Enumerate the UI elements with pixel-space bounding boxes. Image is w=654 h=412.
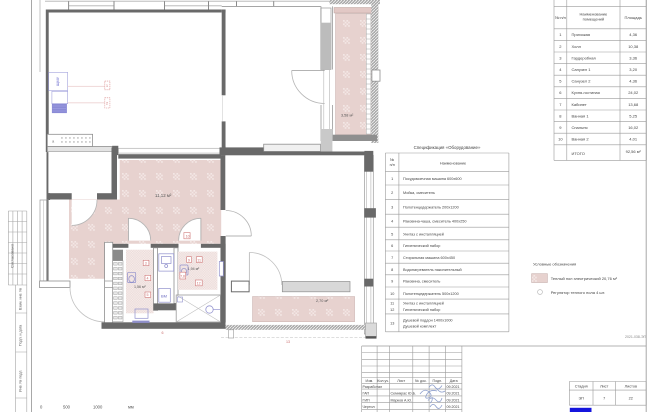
svg-text:11: 11 (197, 258, 201, 262)
svg-text:16,02: 16,02 (628, 125, 639, 130)
svg-text:Подп.: Подп. (433, 379, 443, 383)
svg-text:5,25: 5,25 (629, 113, 638, 118)
svg-text:Площадь: Площадь (624, 15, 641, 20)
svg-text:Санузел 1: Санузел 1 (572, 67, 592, 72)
svg-text:7,8: 7,8 (180, 275, 185, 279)
svg-text:2,70 м²: 2,70 м² (316, 299, 329, 303)
svg-text:п/п: п/п (390, 163, 395, 167)
svg-text:Теплый пол электрический 20,76: Теплый пол электрический 20,76 м² (551, 276, 618, 281)
svg-text:Марков А.Ю.: Марков А.Ю. (391, 398, 413, 402)
svg-text:Взам. инв. №: Взам. инв. № (19, 288, 23, 310)
svg-text:Изм.: Изм. (366, 379, 374, 383)
svg-text:Условные обозначения: Условные обозначения (533, 262, 576, 267)
svg-text:3: 3 (145, 262, 147, 266)
svg-text:4,36: 4,36 (629, 32, 638, 37)
svg-text:Унитаз с инсталляцией: Унитаз с инсталляцией (403, 232, 444, 236)
svg-text:Гигиенический набор: Гигиенический набор (403, 244, 440, 248)
svg-text:№ п/п: № п/п (555, 15, 566, 20)
svg-text:5: 5 (147, 293, 149, 297)
svg-text:Кабинет: Кабинет (572, 102, 587, 107)
svg-text:Спецификация «Оборудование»: Спецификация «Оборудование» (414, 145, 481, 150)
svg-text:13,68: 13,68 (628, 102, 639, 107)
svg-text:22: 22 (629, 397, 633, 401)
svg-text:Стадия: Стадия (575, 384, 588, 388)
svg-text:5: 5 (391, 232, 393, 236)
svg-text:Прихожая: Прихожая (572, 32, 591, 37)
svg-text:Семикрас Ю.Б.: Семикрас Ю.Б. (391, 392, 416, 396)
svg-text:10: 10 (558, 137, 563, 142)
svg-text:Холл: Холл (572, 44, 582, 49)
svg-text:№: № (390, 158, 394, 162)
svg-text:3,20: 3,20 (629, 67, 638, 72)
svg-text:1: 1 (106, 84, 108, 88)
svg-text:1000: 1000 (93, 405, 103, 410)
svg-text:Душевой поддон 1400х1000: Душевой поддон 1400х1000 (403, 319, 453, 323)
svg-text:Лист: Лист (600, 384, 609, 388)
svg-text:ВМ: ВМ (161, 294, 167, 299)
svg-text:Подп. и дата: Подп. и дата (19, 325, 23, 346)
svg-text:Ванная 2: Ванная 2 (572, 137, 590, 142)
svg-text:9: 9 (391, 280, 393, 284)
svg-text:Стиральная машина 600х450: Стиральная машина 600х450 (403, 256, 455, 260)
svg-text:3,58 м²: 3,58 м² (341, 114, 354, 118)
svg-text:помещений: помещений (583, 17, 605, 22)
svg-text:11: 11 (390, 302, 394, 306)
svg-text:4: 4 (391, 220, 393, 224)
svg-text:Душевой комплект: Душевой комплект (403, 325, 436, 329)
svg-text:Мойка, смеситель: Мойка, смеситель (403, 191, 435, 195)
svg-text:2021-038-ЭП: 2021-038-ЭП (625, 335, 646, 339)
svg-text:мм: мм (128, 405, 134, 410)
svg-text:8: 8 (391, 268, 393, 272)
svg-text:4,36: 4,36 (629, 79, 638, 84)
svg-text:Наименование: Наименование (440, 162, 466, 166)
svg-text:1,56 м²: 1,56 м² (134, 285, 146, 289)
svg-text:ЭП: ЭП (578, 397, 584, 401)
svg-text:09.2021: 09.2021 (447, 392, 460, 396)
svg-text:ЩМУ: ЩМУ (56, 76, 60, 86)
svg-text:Полотенцедержатель 500х1200: Полотенцедержатель 500х1200 (403, 292, 459, 296)
svg-text:9: 9 (188, 258, 190, 262)
svg-text:6: 6 (162, 331, 164, 335)
svg-text:ИТОГО: ИТОГО (572, 151, 585, 156)
svg-text:Чертил: Чертил (363, 405, 375, 409)
svg-text:3,36: 3,36 (629, 55, 638, 60)
svg-text:10: 10 (186, 235, 190, 239)
svg-text:1,94 м²: 1,94 м² (188, 267, 200, 271)
svg-text:1: 1 (391, 177, 393, 181)
svg-text:2: 2 (106, 102, 108, 106)
svg-text:Регулятор теплого пола 4 шт.: Регулятор теплого пола 4 шт. (551, 290, 605, 295)
svg-text:12: 12 (390, 308, 394, 312)
svg-text:Ванная 1: Ванная 1 (572, 113, 590, 118)
svg-text:Гардеробная: Гардеробная (572, 55, 596, 60)
svg-text:7: 7 (391, 256, 393, 260)
svg-text:Кол.уч.: Кол.уч. (377, 379, 389, 383)
svg-text:Листов: Листов (625, 384, 637, 388)
svg-text:2: 2 (391, 191, 393, 195)
svg-text:Согласовано: Согласовано (10, 243, 15, 268)
svg-text:09.2021: 09.2021 (447, 405, 460, 409)
svg-text:09.2021: 09.2021 (447, 398, 460, 402)
svg-text:6: 6 (391, 244, 393, 248)
svg-text:Разработал: Разработал (363, 385, 383, 389)
svg-text:13: 13 (390, 322, 394, 326)
svg-text:3: 3 (391, 206, 393, 210)
svg-text:13: 13 (286, 340, 290, 344)
svg-text:Водонагреватель накопительный: Водонагреватель накопительный (403, 268, 462, 272)
svg-text:Лист: Лист (397, 379, 405, 383)
svg-text:ГИП: ГИП (363, 398, 371, 402)
svg-text:Раковина-чаша, смеситель 400х2: Раковина-чаша, смеситель 400х250 (403, 220, 466, 224)
svg-text:Инв. № подл.: Инв. № подл. (19, 370, 23, 392)
svg-text:4,01: 4,01 (629, 137, 638, 142)
svg-text:10,38: 10,38 (628, 44, 639, 49)
svg-text:11,12 м²: 11,12 м² (155, 193, 172, 198)
svg-text:10: 10 (390, 292, 394, 296)
svg-text:4: 4 (147, 277, 149, 281)
svg-text:12: 12 (197, 282, 201, 286)
svg-text:Дата: Дата (450, 379, 458, 383)
svg-text:Спальня: Спальня (572, 125, 588, 130)
svg-text:09.2021: 09.2021 (447, 385, 460, 389)
svg-text:Раковина, смеситель: Раковина, смеситель (403, 280, 440, 284)
svg-text:Посудомоечная машина 600х600: Посудомоечная машина 600х600 (403, 177, 462, 181)
svg-text:24,02: 24,02 (628, 90, 639, 95)
svg-text:92,56 м²: 92,56 м² (626, 149, 642, 154)
svg-text:Полотенцедержатель 200х1200: Полотенцедержатель 200х1200 (403, 206, 459, 210)
svg-text:№ док.: № док. (415, 379, 427, 383)
svg-text:Гигиенический набор: Гигиенический набор (403, 308, 440, 312)
svg-text:7: 7 (603, 397, 605, 401)
svg-text:Унитаз с инсталляцией: Унитаз с инсталляцией (403, 302, 444, 306)
svg-text:Санузел 2: Санузел 2 (572, 79, 592, 84)
svg-text:ГАП: ГАП (363, 392, 370, 396)
svg-text:Кухня-гостиная: Кухня-гостиная (572, 90, 600, 95)
svg-text:500: 500 (63, 405, 71, 410)
